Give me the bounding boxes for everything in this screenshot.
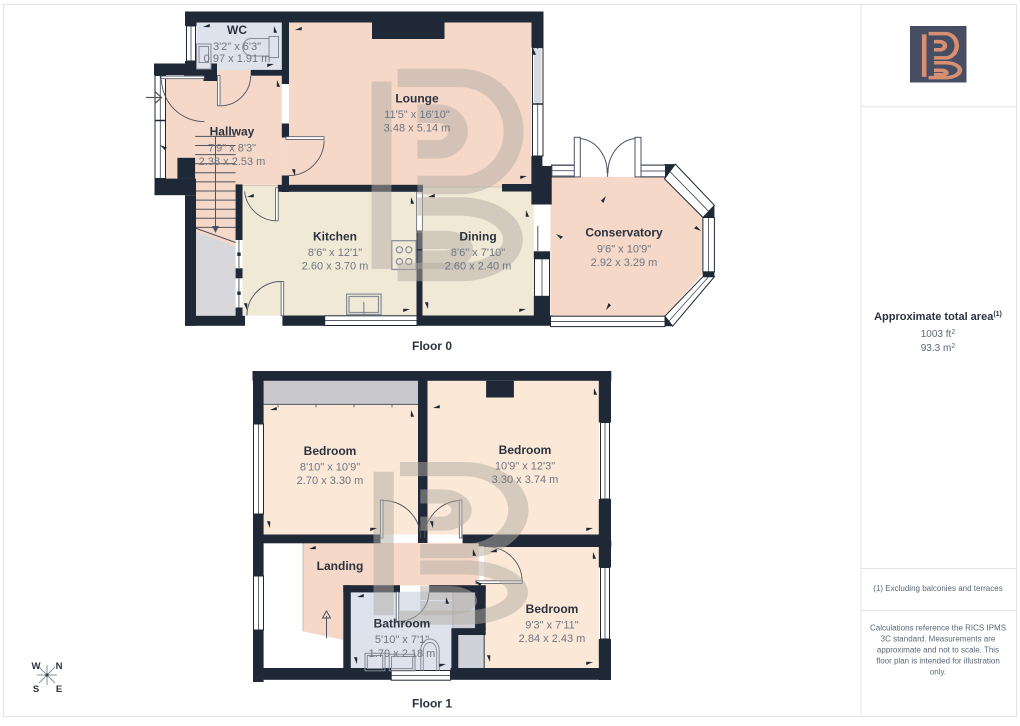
svg-text:8'6" x 12'1": 8'6" x 12'1" [308,247,362,259]
svg-text:2.38 x 2.53 m: 2.38 x 2.53 m [199,156,266,168]
svg-text:8'10" x 10'9": 8'10" x 10'9" [300,462,360,474]
svg-text:only.: only. [930,668,946,677]
svg-text:2.92 x 3.29 m: 2.92 x 3.29 m [591,257,658,269]
svg-text:5'10" x 7'1": 5'10" x 7'1" [375,634,429,646]
svg-text:N: N [56,661,63,672]
svg-text:9'3" x 7'11": 9'3" x 7'11" [525,620,578,632]
svg-text:2.60 x 2.40 m: 2.60 x 2.40 m [445,261,512,273]
svg-text:10'9" x 12'3": 10'9" x 12'3" [495,461,555,473]
svg-text:Bedroom: Bedroom [499,443,552,457]
svg-text:2.84 x 2.43 m: 2.84 x 2.43 m [519,633,586,645]
svg-text:Lounge: Lounge [395,92,439,106]
svg-text:3C standard. Measurements are: 3C standard. Measurements are [881,635,996,644]
svg-text:Conservatory: Conservatory [585,226,663,240]
svg-text:Hallway: Hallway [210,125,255,139]
svg-text:1.79 x 2.18 m: 1.79 x 2.18 m [369,648,436,660]
svg-text:7'9" x 8'3": 7'9" x 8'3" [208,143,256,155]
svg-text:1003 ft2: 1003 ft2 [921,329,956,340]
svg-text:approximate and not to scale.: approximate and not to scale. This [877,646,999,655]
svg-text:WC: WC [227,23,247,37]
svg-text:Bedroom: Bedroom [304,444,357,458]
svg-text:Approximate total area(1): Approximate total area(1) [874,311,1002,323]
svg-text:93.3 m2: 93.3 m2 [921,343,956,354]
svg-text:Landing: Landing [317,559,364,573]
svg-text:3.48 x 5.14 m: 3.48 x 5.14 m [384,123,451,135]
svg-text:Floor 1: Floor 1 [412,697,452,711]
svg-text:Dining: Dining [459,230,496,244]
svg-text:S: S [33,684,39,695]
svg-text:9'6" x 10'9": 9'6" x 10'9" [597,244,651,256]
svg-text:Calculations reference the RIC: Calculations reference the RICS IPMS [870,624,1006,633]
svg-text:2.70 x 3.30 m: 2.70 x 3.30 m [297,475,364,487]
svg-text:3'2" x 6'3": 3'2" x 6'3" [213,41,261,53]
svg-text:8'6" x 7'10": 8'6" x 7'10" [451,247,505,259]
svg-text:3.30 x 3.74 m: 3.30 x 3.74 m [492,474,559,486]
svg-text:floor plan is intended for ill: floor plan is intended for illustration [876,657,1000,666]
svg-text:0.97 x 1.91 m: 0.97 x 1.91 m [204,53,271,65]
svg-text:W: W [32,661,41,672]
svg-text:2.60 x 3.70 m: 2.60 x 3.70 m [302,261,369,273]
svg-text:E: E [56,684,62,695]
svg-text:(1) Excluding balconies and te: (1) Excluding balconies and terraces [873,584,1002,593]
svg-text:Kitchen: Kitchen [313,230,357,244]
svg-text:Floor 0: Floor 0 [412,339,452,353]
svg-text:Bedroom: Bedroom [526,602,579,616]
svg-text:Bathroom: Bathroom [374,617,431,631]
svg-text:11'5" x 16'10": 11'5" x 16'10" [384,109,450,121]
